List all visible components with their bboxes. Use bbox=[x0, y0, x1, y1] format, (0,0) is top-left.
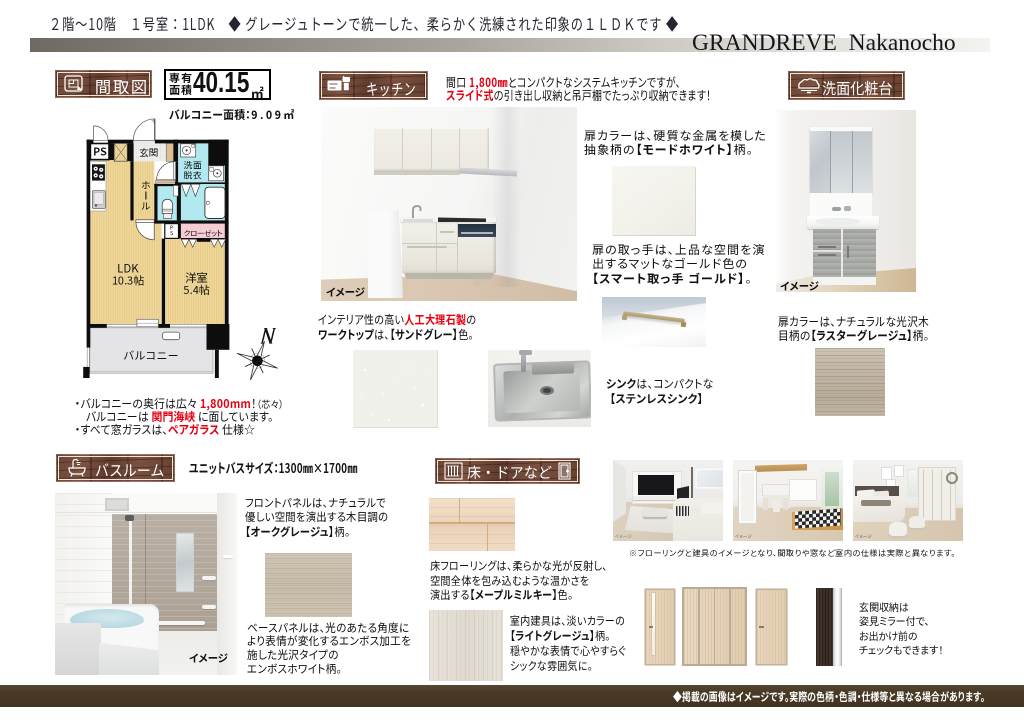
svg-text:10.3帖: 10.3帖 bbox=[112, 272, 144, 288]
svg-text:クローゼット: クローゼット bbox=[183, 228, 222, 239]
svg-text:玄関: 玄関 bbox=[139, 145, 158, 159]
svg-text:ル: ル bbox=[141, 199, 151, 213]
svg-text:ホ: ホ bbox=[141, 178, 150, 192]
svg-text:脱衣: 脱衣 bbox=[183, 169, 202, 182]
svg-text:5.4帖: 5.4帖 bbox=[183, 282, 209, 298]
svg-text:PS: PS bbox=[93, 145, 107, 160]
svg-text:バルコニー: バルコニー bbox=[123, 348, 179, 364]
